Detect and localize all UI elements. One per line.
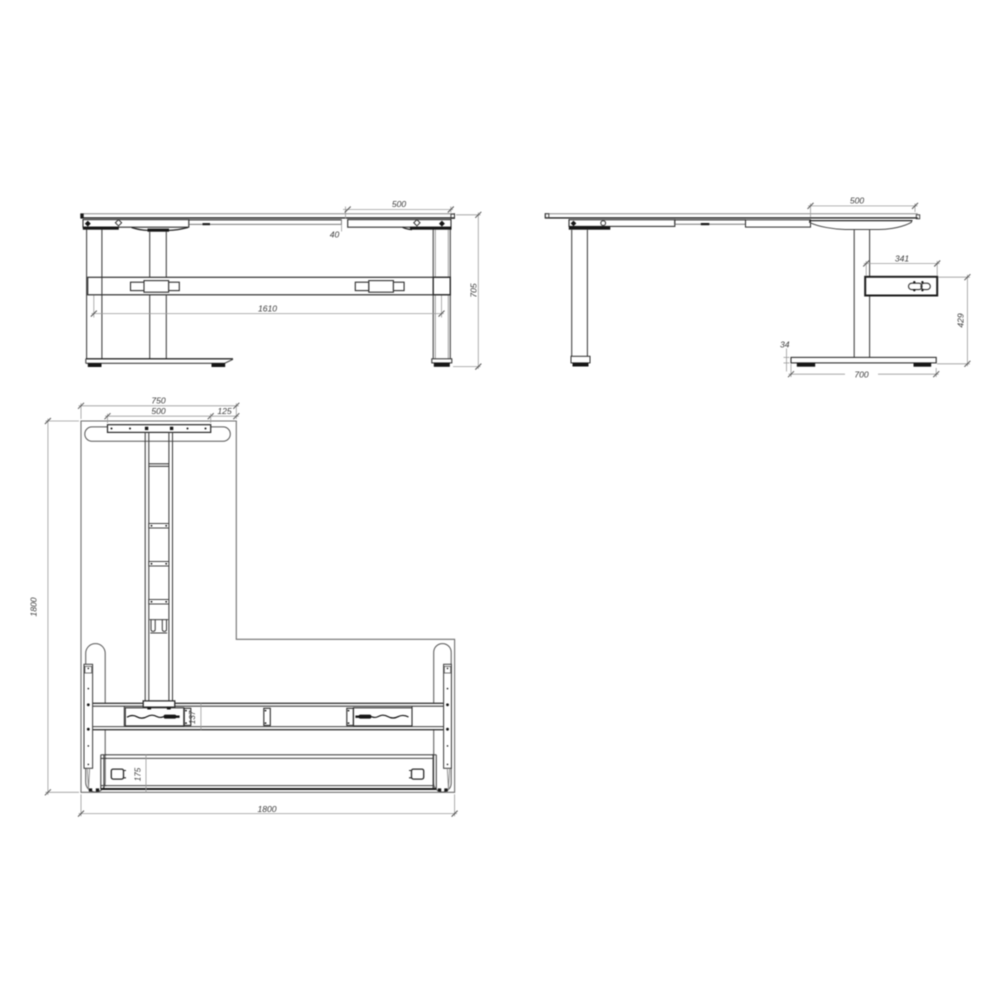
svg-text:137: 137 (188, 710, 197, 724)
svg-text:705: 705 (469, 283, 479, 298)
svg-text:1800: 1800 (29, 597, 39, 616)
svg-text:1800: 1800 (257, 804, 276, 814)
svg-text:125: 125 (217, 406, 232, 416)
svg-text:700: 700 (854, 369, 869, 379)
svg-text:1610: 1610 (258, 303, 277, 313)
svg-text:750: 750 (151, 396, 166, 406)
svg-text:341: 341 (895, 253, 910, 263)
svg-text:40: 40 (330, 229, 340, 239)
svg-text:500: 500 (392, 199, 407, 209)
svg-text:429: 429 (956, 313, 966, 328)
svg-text:500: 500 (850, 196, 865, 206)
svg-text:500: 500 (151, 406, 166, 416)
svg-text:34: 34 (780, 339, 790, 349)
svg-text:175: 175 (134, 767, 143, 781)
